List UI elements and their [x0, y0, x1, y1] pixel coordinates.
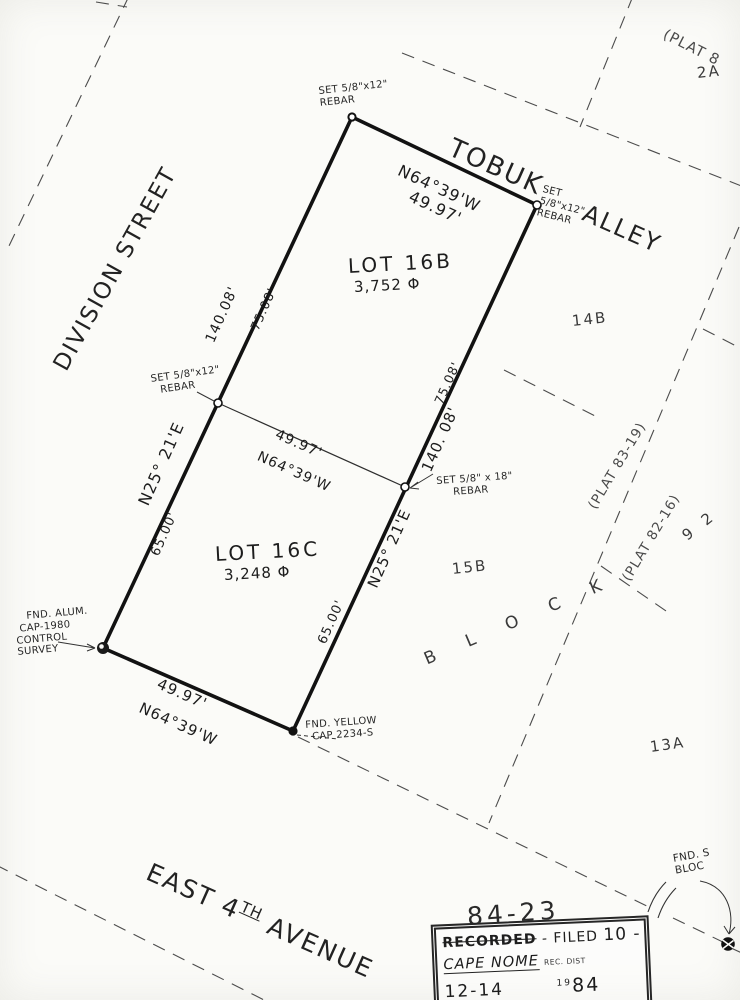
stamp-number: 10 -	[603, 924, 641, 946]
leader-mid-left	[197, 392, 214, 401]
square-feet-symbol: Φ	[407, 275, 421, 294]
line-break-symbol	[648, 882, 676, 918]
plat-boundary-spur	[703, 329, 740, 350]
note-found-yellow-cap: FND. YELLOW CAP 2234-S	[305, 715, 378, 744]
adjacent-lot-15b: 15B	[451, 556, 488, 578]
stamp-year-small: 19	[556, 978, 572, 989]
lot-16b-area: 3,752 Φ	[354, 275, 421, 296]
block-south-line-b	[673, 918, 725, 943]
square-feet-symbol: Φ	[277, 563, 291, 582]
tobuk-alley-north-line	[402, 53, 740, 187]
stamp-office-name: CAPE NOME	[443, 953, 539, 974]
recording-stamp: RECORDED - FILED 10 - CAPE NOME REC. DIS…	[431, 915, 654, 1000]
plat-linework	[0, 0, 740, 1000]
east-4th-ave-north-line	[0, 865, 276, 1000]
plat-map-page: DIVISION STREET TOBUK ALLEY EAST 4TH AVE…	[0, 0, 740, 1000]
rebar-marker-mid-east	[401, 483, 409, 491]
block-south-line-a	[298, 737, 651, 908]
found-monument-se	[721, 937, 735, 951]
division-street-east-line	[8, 0, 129, 248]
leader-se-curved	[700, 881, 735, 934]
leader-mid-right	[410, 474, 433, 489]
lot-16c-area: 3,248 Φ	[224, 563, 291, 584]
stamp-row-date: 12-14 1984	[444, 972, 641, 1000]
note-found-alum-cap: FND. ALUM. CAP-1980 CONTROL SURVEY	[14, 606, 91, 659]
stamp-date: 12-14	[444, 980, 504, 1000]
stamp-district: REC. DIST	[544, 956, 586, 967]
corner-dash-top-left	[96, 2, 127, 7]
yellow-cap-marker-south	[288, 726, 297, 735]
lot2a-west-line	[580, 0, 633, 127]
rebar-marker-north	[348, 113, 355, 120]
rebar-marker-mid-west	[214, 399, 222, 407]
stamp-year: 84	[572, 973, 601, 996]
lot-16c-area-value: 3,248	[224, 564, 273, 584]
lot14b-15b-line	[504, 370, 601, 419]
alum-cap-marker-sw	[97, 642, 109, 654]
adjacent-lot-14b: 14B	[571, 308, 608, 330]
stamp-filed: - FILED	[542, 929, 599, 947]
stamp-recorded-struck: RECORDED	[442, 931, 537, 951]
lot-16b-area-value: 3,752	[354, 276, 403, 296]
